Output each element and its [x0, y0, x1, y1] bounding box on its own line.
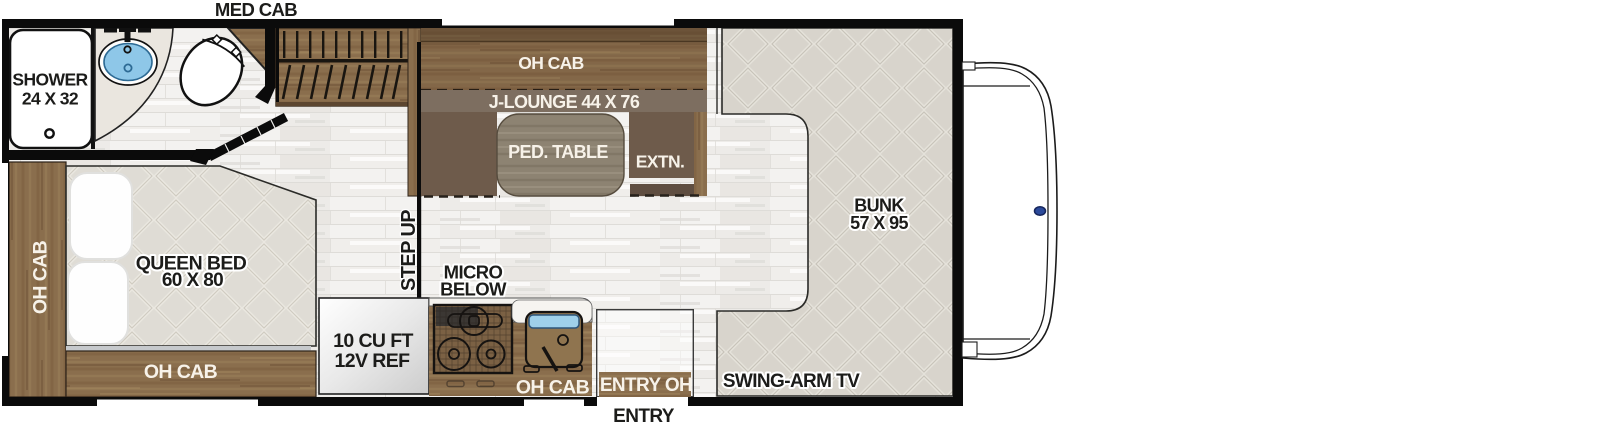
- svg-text:OH CAB: OH CAB: [516, 377, 590, 399]
- svg-text:ENTRY OH: ENTRY OH: [600, 375, 692, 396]
- svg-text:OH CAB: OH CAB: [30, 240, 52, 314]
- svg-text:STEP UP: STEP UP: [398, 210, 420, 291]
- svg-text:ENTRY: ENTRY: [613, 406, 675, 427]
- svg-text:PED. TABLE: PED. TABLE: [508, 142, 608, 162]
- svg-text:OH CAB: OH CAB: [144, 361, 218, 383]
- svg-text:EXTN.: EXTN.: [636, 152, 685, 172]
- svg-text:SWING-ARM TV: SWING-ARM TV: [723, 371, 860, 392]
- svg-text:60 X 80: 60 X 80: [162, 270, 223, 291]
- svg-text:SHOWER: SHOWER: [12, 70, 88, 90]
- svg-text:MED CAB: MED CAB: [215, 0, 297, 20]
- svg-text:OH CAB: OH CAB: [518, 53, 583, 73]
- svg-text:J-LOUNGE 44 X 76: J-LOUNGE 44 X 76: [489, 92, 640, 112]
- svg-text:24 X 32: 24 X 32: [22, 89, 79, 109]
- svg-text:12V REF: 12V REF: [335, 350, 411, 372]
- svg-text:57 X 95: 57 X 95: [850, 213, 908, 233]
- svg-text:10 CU FT: 10 CU FT: [333, 330, 413, 352]
- svg-text:BELOW: BELOW: [440, 279, 507, 300]
